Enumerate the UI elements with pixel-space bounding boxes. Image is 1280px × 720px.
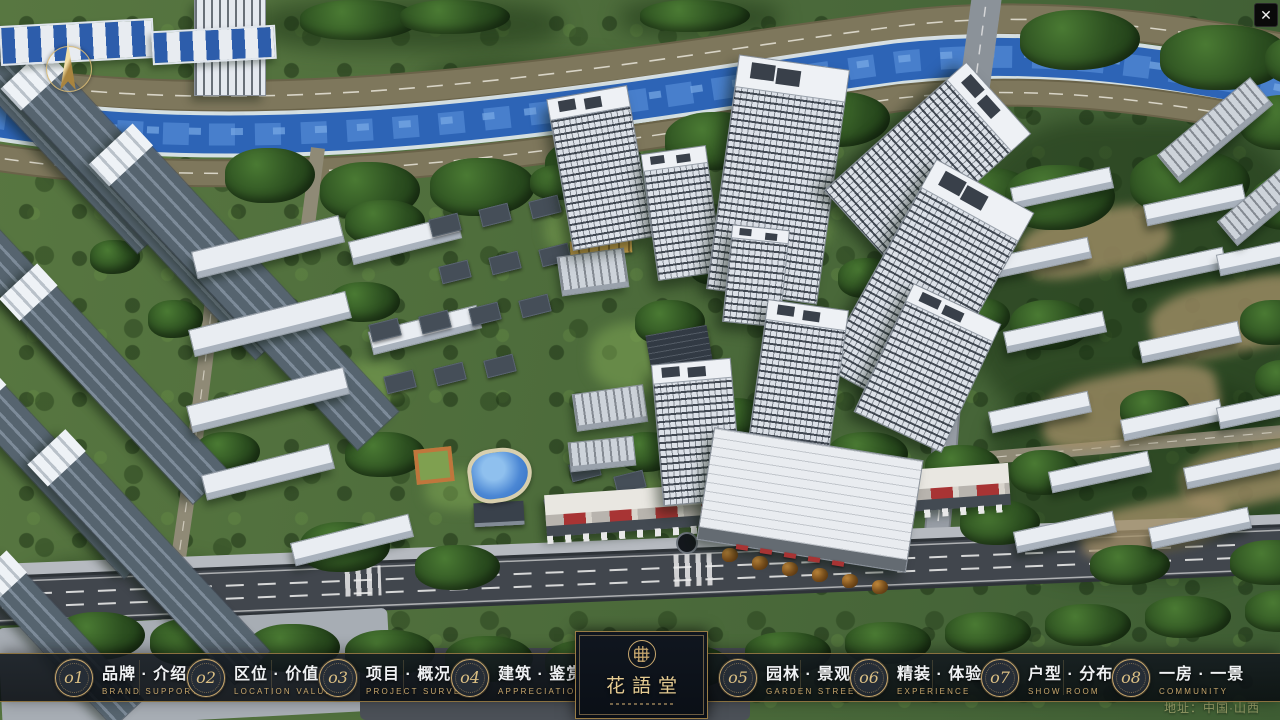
nav-item-garden-landscape[interactable]: o5 园林 · 景观 GARDEN STREET <box>719 654 863 701</box>
nav-label-en: GARDEN STREET <box>766 687 863 696</box>
nav-label-zh: 精装 · 体验 <box>897 660 982 684</box>
nav-label-en: APPRECIATION <box>498 687 583 696</box>
project-logo[interactable]: 花語堂 <box>575 631 708 719</box>
tree-grove <box>1240 300 1280 345</box>
crosswalk <box>673 553 714 586</box>
nav-item-project-survey[interactable]: o3 项目 · 概况 PROJECT SURVEY <box>319 654 469 701</box>
nav-label-zh: 品牌 · 介绍 <box>102 660 187 684</box>
nav-label-zh: 一房 · 一景 <box>1159 660 1244 684</box>
nav-item-floorplan-distribution[interactable]: o7 户型 · 分布 SHOW ROOM <box>981 654 1113 701</box>
nav-number-badge: o2 <box>187 659 225 697</box>
nav-label-zh: 建筑 · 鉴赏 <box>498 660 583 684</box>
nav-number-badge: o5 <box>719 659 757 697</box>
nav-item-architecture[interactable]: o4 建筑 · 鉴赏 APPRECIATION <box>451 654 583 701</box>
nav-number-badge: o6 <box>850 659 888 697</box>
nav-number-badge: o4 <box>451 659 489 697</box>
nav-item-interior-experience[interactable]: o6 精装 · 体验 EXPERIENCE <box>850 654 982 701</box>
seal-emblem-icon <box>628 640 656 668</box>
close-icon: ✕ <box>1260 8 1272 22</box>
close-button[interactable]: ✕ <box>1254 3 1278 27</box>
rooftop-solar <box>151 25 277 65</box>
nav-label-en: SHOW ROOM <box>1028 687 1100 696</box>
app-window: ✕ o1 品牌 · 介绍 BRAND SUPPORT o2 区位 · 价值 LO… <box>0 0 1280 720</box>
masterplan-render <box>0 0 1280 720</box>
nav-item-location-value[interactable]: o2 区位 · 价值 LOCATION VALUE <box>187 654 333 701</box>
compass-north-icon <box>44 40 92 96</box>
tree-grove <box>1230 540 1280 585</box>
gate-pavilion <box>473 501 524 528</box>
entrance-emblem <box>676 532 698 554</box>
nav-label-zh: 园林 · 景观 <box>766 660 851 684</box>
nav-number-badge: o7 <box>981 659 1019 697</box>
nav-label-en: COMMUNITY <box>1159 687 1228 696</box>
nav-number-badge: o8 <box>1112 659 1150 697</box>
nav-item-brand-intro[interactable]: o1 品牌 · 介绍 BRAND SUPPORT <box>55 654 199 701</box>
logo-subtitle-line <box>610 703 674 705</box>
project-title: 花語堂 <box>576 671 707 698</box>
orange-frame-building <box>413 446 454 485</box>
tree-grove <box>1160 25 1280 90</box>
nav-number-badge: o1 <box>55 659 93 697</box>
nav-item-one-room-one-view[interactable]: o8 一房 · 一景 COMMUNITY <box>1112 654 1244 701</box>
nav-label-zh: 项目 · 概况 <box>366 660 451 684</box>
nav-label-en: EXPERIENCE <box>897 687 971 696</box>
nav-label-en: BRAND SUPPORT <box>102 687 199 696</box>
nav-label-zh: 区位 · 价值 <box>234 660 319 684</box>
nav-label-zh: 户型 · 分布 <box>1028 660 1113 684</box>
nav-number-badge: o3 <box>319 659 357 697</box>
